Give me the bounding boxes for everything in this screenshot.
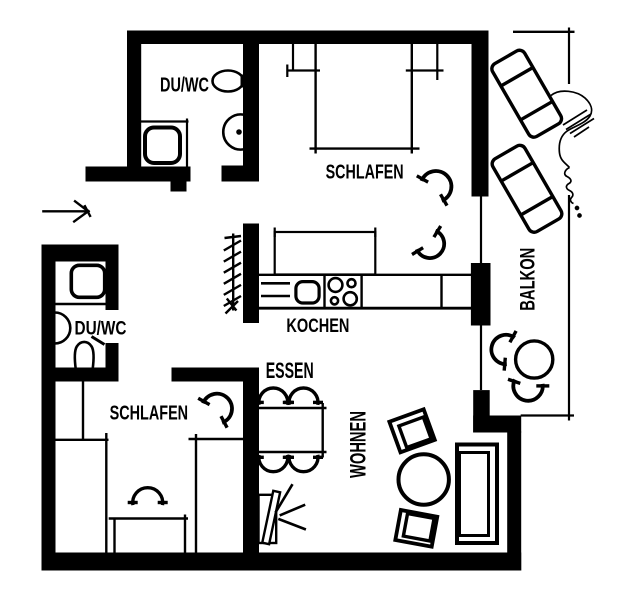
svg-text:DU/WC: DU/WC bbox=[160, 75, 209, 97]
svg-text:KOCHEN: KOCHEN bbox=[286, 315, 349, 337]
svg-text:WOHNEN: WOHNEN bbox=[345, 411, 370, 478]
svg-text:DU/WC: DU/WC bbox=[75, 319, 127, 340]
svg-text:SCHLAFEN: SCHLAFEN bbox=[110, 402, 189, 425]
svg-text:SCHLAFEN: SCHLAFEN bbox=[326, 162, 404, 184]
svg-text:ESSEN: ESSEN bbox=[266, 358, 314, 383]
svg-text:BALKON: BALKON bbox=[517, 248, 540, 311]
